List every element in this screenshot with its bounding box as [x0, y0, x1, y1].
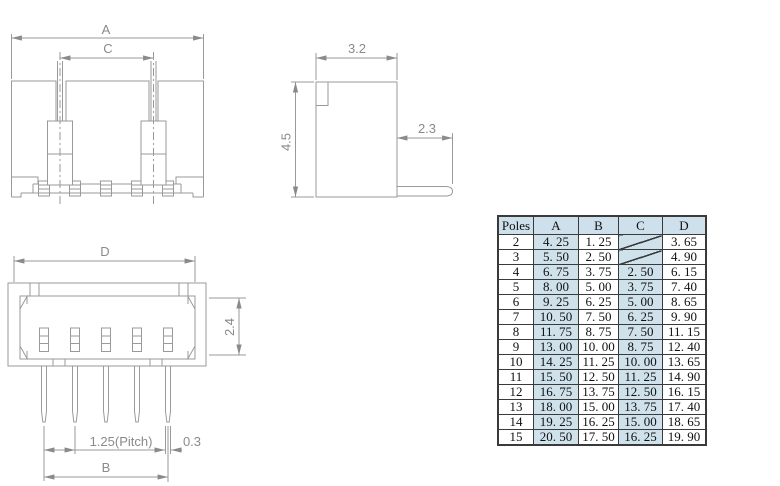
poles-cell: 5 — [498, 280, 534, 295]
dimension-cell: 5. 00 — [619, 295, 663, 310]
poles-cell: 10 — [498, 355, 534, 370]
dim-label-c: C — [103, 41, 112, 56]
poles-cell: 9 — [498, 340, 534, 355]
table-body: 24. 251. 253. 6535. 502. 504. 9046. 753.… — [498, 235, 706, 446]
poles-cell: 3 — [498, 250, 534, 265]
dim-label-a: A — [102, 22, 111, 37]
dim-label-pin-length: 2.3 — [418, 121, 436, 136]
poles-cell: 11 — [498, 370, 534, 385]
dimension-cell: 11. 25 — [579, 355, 619, 370]
bottom-pins — [42, 366, 171, 422]
dimension-cell: 15. 50 — [534, 370, 579, 385]
dimension-cell: 15. 00 — [619, 415, 663, 430]
dimension-cell: 12. 50 — [619, 385, 663, 400]
dim-label-side-width: 3.2 — [348, 41, 366, 56]
dimension-cell: 8. 65 — [663, 295, 707, 310]
dimension-cell: 17. 40 — [663, 400, 707, 415]
poles-cell: 14 — [498, 415, 534, 430]
table-row: 58. 005. 003. 757. 40 — [498, 280, 706, 295]
table-row: 46. 753. 752. 506. 15 — [498, 265, 706, 280]
table-row: 1419. 2516. 2515. 0018. 65 — [498, 415, 706, 430]
table-header-row: PolesABCD — [498, 216, 706, 235]
dim-label-side-height: 4.5 — [279, 133, 294, 151]
column-header-a: A — [534, 216, 579, 235]
dimension-cell: 4. 25 — [534, 235, 579, 250]
dimension-cell: 10. 50 — [534, 310, 579, 325]
dimension-cell: 12. 40 — [663, 340, 707, 355]
na-slash-cell — [619, 250, 663, 265]
dimension-cell: 19. 90 — [663, 430, 707, 446]
dimension-cell: 11. 75 — [534, 325, 579, 340]
dimension-cell: 19. 25 — [534, 415, 579, 430]
poles-cell: 4 — [498, 265, 534, 280]
column-header-d: D — [663, 216, 707, 235]
poles-cell: 6 — [498, 295, 534, 310]
front-crimp-posts — [48, 121, 167, 185]
poles-cell: 15 — [498, 430, 534, 446]
dimension-cell: 15. 00 — [579, 400, 619, 415]
dimension-cell: 2. 50 — [579, 250, 619, 265]
dimension-cell: 13. 75 — [619, 400, 663, 415]
poles-cell: 8 — [498, 325, 534, 340]
dimension-cell: 6. 25 — [579, 295, 619, 310]
dimension-cell: 1. 25 — [579, 235, 619, 250]
dimension-cell: 11. 15 — [663, 325, 707, 340]
dimension-cell: 8. 75 — [579, 325, 619, 340]
bottom-view-drawing: D 2.4 — [8, 244, 246, 482]
column-header-poles: Poles — [498, 216, 534, 235]
dimension-cell: 11. 25 — [619, 370, 663, 385]
dim-label-b: B — [102, 460, 111, 475]
dimension-cell: 14. 90 — [663, 370, 707, 385]
table-row: 913. 0010. 008. 7512. 40 — [498, 340, 706, 355]
table-row: 710. 507. 506. 259. 90 — [498, 310, 706, 325]
dimension-cell: 5. 00 — [579, 280, 619, 295]
dimension-cell: 8. 00 — [534, 280, 579, 295]
dimension-cell: 2. 50 — [619, 265, 663, 280]
side-view-drawing: 3.2 4.5 2.3 — [279, 41, 453, 197]
dimension-cell: 9. 90 — [663, 310, 707, 325]
dimension-cell: 7. 40 — [663, 280, 707, 295]
dimension-cell: 17. 50 — [579, 430, 619, 446]
dimension-cell: 6. 75 — [534, 265, 579, 280]
table-row: 69. 256. 255. 008. 65 — [498, 295, 706, 310]
table-row: 811. 758. 757. 5011. 15 — [498, 325, 706, 340]
poles-cell: 7 — [498, 310, 534, 325]
poles-cell: 2 — [498, 235, 534, 250]
table-row: 1520. 5017. 5016. 2519. 90 — [498, 430, 706, 446]
dim-label-d: D — [100, 244, 109, 259]
dimension-cell: 3. 75 — [619, 280, 663, 295]
dimension-cell: 20. 50 — [534, 430, 579, 446]
dimension-cell: 7. 50 — [579, 310, 619, 325]
dim-label-pin-width: 0.3 — [183, 434, 201, 449]
dimension-cell: 18. 00 — [534, 400, 579, 415]
table-row: 1115. 5012. 5011. 2514. 90 — [498, 370, 706, 385]
dimension-cell: 8. 75 — [619, 340, 663, 355]
dimension-cell: 9. 25 — [534, 295, 579, 310]
dimension-cell: 18. 65 — [663, 415, 707, 430]
dim-label-pitch: 1.25(Pitch) — [90, 434, 153, 449]
dimension-cell: 13. 00 — [534, 340, 579, 355]
dimension-cell: 16. 15 — [663, 385, 707, 400]
table-row: 1318. 0015. 0013. 7517. 40 — [498, 400, 706, 415]
dimension-table: PolesABCD 24. 251. 253. 6535. 502. 504. … — [497, 215, 707, 446]
dimension-cell: 3. 75 — [579, 265, 619, 280]
dimension-cell: 4. 90 — [663, 250, 707, 265]
poles-cell: 13 — [498, 400, 534, 415]
column-header-b: B — [579, 216, 619, 235]
bottom-contacts — [40, 328, 173, 352]
dimension-cell: 16. 75 — [534, 385, 579, 400]
dimension-cell: 16. 25 — [579, 415, 619, 430]
poles-dimension-table: PolesABCD 24. 251. 253. 6535. 502. 504. … — [497, 215, 707, 446]
table-row: 35. 502. 504. 90 — [498, 250, 706, 265]
dim-label-bottom-height: 2.4 — [222, 318, 237, 336]
dimension-cell: 16. 25 — [619, 430, 663, 446]
connector-drawing-sheet: { "drawings": { "front_view": { "labels"… — [0, 0, 780, 486]
column-header-c: C — [619, 216, 663, 235]
table-row: 1216. 7513. 7512. 5016. 15 — [498, 385, 706, 400]
front-view-drawing: A C — [12, 22, 204, 204]
dimension-cell: 6. 25 — [619, 310, 663, 325]
dimension-cell: 13. 65 — [663, 355, 707, 370]
dimension-cell: 6. 15 — [663, 265, 707, 280]
dimension-cell: 12. 50 — [579, 370, 619, 385]
dimension-cell: 10. 00 — [619, 355, 663, 370]
dimension-cell: 5. 50 — [534, 250, 579, 265]
dimension-cell: 10. 00 — [579, 340, 619, 355]
poles-cell: 12 — [498, 385, 534, 400]
dimension-cell: 14. 25 — [534, 355, 579, 370]
dimension-cell: 13. 75 — [579, 385, 619, 400]
dimension-cell: 7. 50 — [619, 325, 663, 340]
table-row: 24. 251. 253. 65 — [498, 235, 706, 250]
table-row: 1014. 2511. 2510. 0013. 65 — [498, 355, 706, 370]
na-slash-cell — [619, 235, 663, 250]
dimension-cell: 3. 65 — [663, 235, 707, 250]
